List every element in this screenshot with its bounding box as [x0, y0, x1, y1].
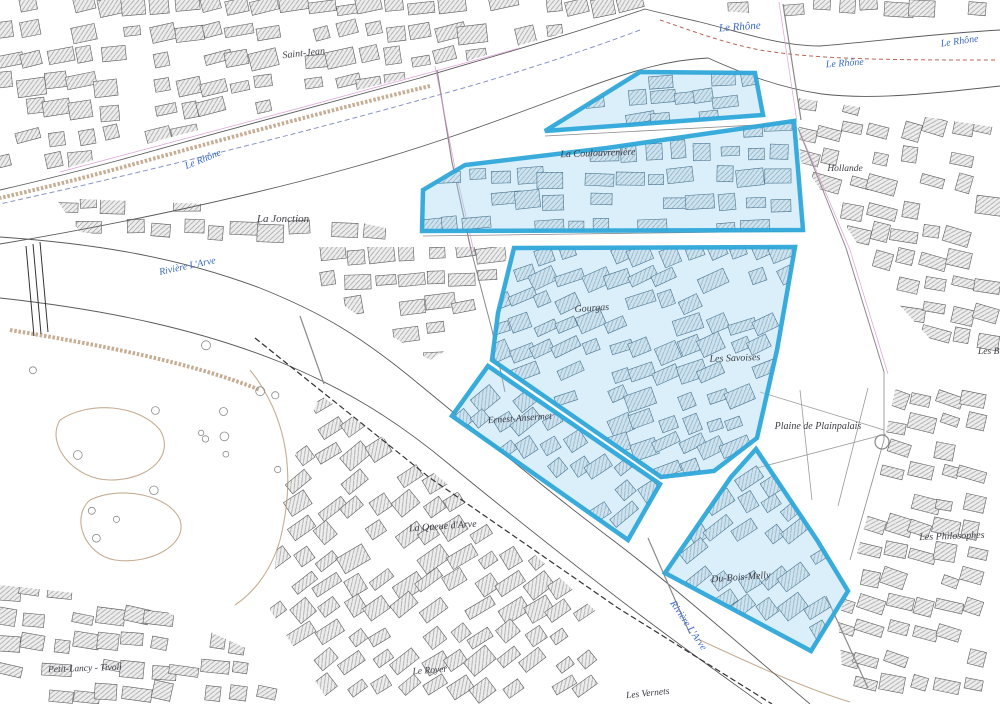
- road-line: [300, 316, 324, 384]
- park-tree: [202, 341, 211, 350]
- park-tree: [223, 451, 229, 457]
- district-label: Plaine de Plainpalais: [774, 421, 862, 432]
- district-label: Les Vernets: [625, 687, 671, 702]
- district-label: Les B: [977, 347, 1000, 357]
- park-layer: [29, 341, 281, 542]
- district-label: Les Philosophes: [918, 530, 985, 543]
- park-tree: [272, 392, 279, 399]
- contour-line: [81, 493, 181, 561]
- plaine-path: [757, 434, 886, 468]
- contour-line: [10, 330, 260, 390]
- railway-line: [26, 246, 34, 336]
- road-line: [783, 4, 801, 120]
- district-label: La Jonction: [256, 213, 310, 225]
- river-label: Le Rhône: [939, 33, 980, 49]
- gray-blocks-hollande: [788, 96, 1000, 351]
- zone-coulouvreniere-nord: [545, 68, 763, 131]
- gray-blocks-saint-jean: [0, 0, 644, 169]
- plaine-path: [838, 388, 868, 506]
- river-label: Rivière L'Arve: [667, 598, 709, 653]
- river-label: Le Rhône: [717, 20, 761, 35]
- park-tree: [198, 430, 203, 435]
- contour-line: [700, 640, 850, 702]
- zone-la-coulouvreniere: [418, 118, 803, 238]
- gray-blocks-petit-lancy: [0, 581, 277, 704]
- park-tree: [275, 466, 281, 472]
- park-tree: [73, 451, 82, 460]
- district-label: Les Savoises: [708, 352, 760, 365]
- park-tree: [150, 486, 159, 495]
- district-label: Petit-Lancy - Tivoli: [47, 663, 123, 676]
- park-tree: [88, 507, 95, 514]
- park-tree: [113, 516, 119, 522]
- gray-blocks-quai-nord-est: [728, 0, 987, 18]
- contour-line: [56, 408, 164, 480]
- city-map: Le RhôneLe RhôneLe RhôneLe RhôneRivière …: [0, 0, 1000, 704]
- railway-line: [33, 244, 41, 334]
- park-tree: [152, 407, 160, 415]
- parcel-line: [779, 2, 797, 122]
- gray-blocks-jonction-pointe: [51, 198, 386, 242]
- park-tree: [256, 387, 265, 396]
- park-tree: [220, 408, 228, 416]
- park-tree: [93, 534, 101, 542]
- park-tree: [29, 367, 36, 374]
- map-root: Le RhôneLe RhôneLe RhôneLe RhôneRivière …: [0, 0, 1000, 704]
- river-label: Rivière L'Arve: [157, 255, 217, 278]
- contour-line: [235, 370, 288, 605]
- river-label: Le Rhône: [824, 57, 864, 71]
- railway-line: [40, 242, 48, 332]
- park-tree: [220, 432, 229, 441]
- park-tree: [202, 436, 208, 442]
- gray-blocks-jonction-est: [320, 241, 507, 362]
- district-label: Hollande: [826, 164, 862, 174]
